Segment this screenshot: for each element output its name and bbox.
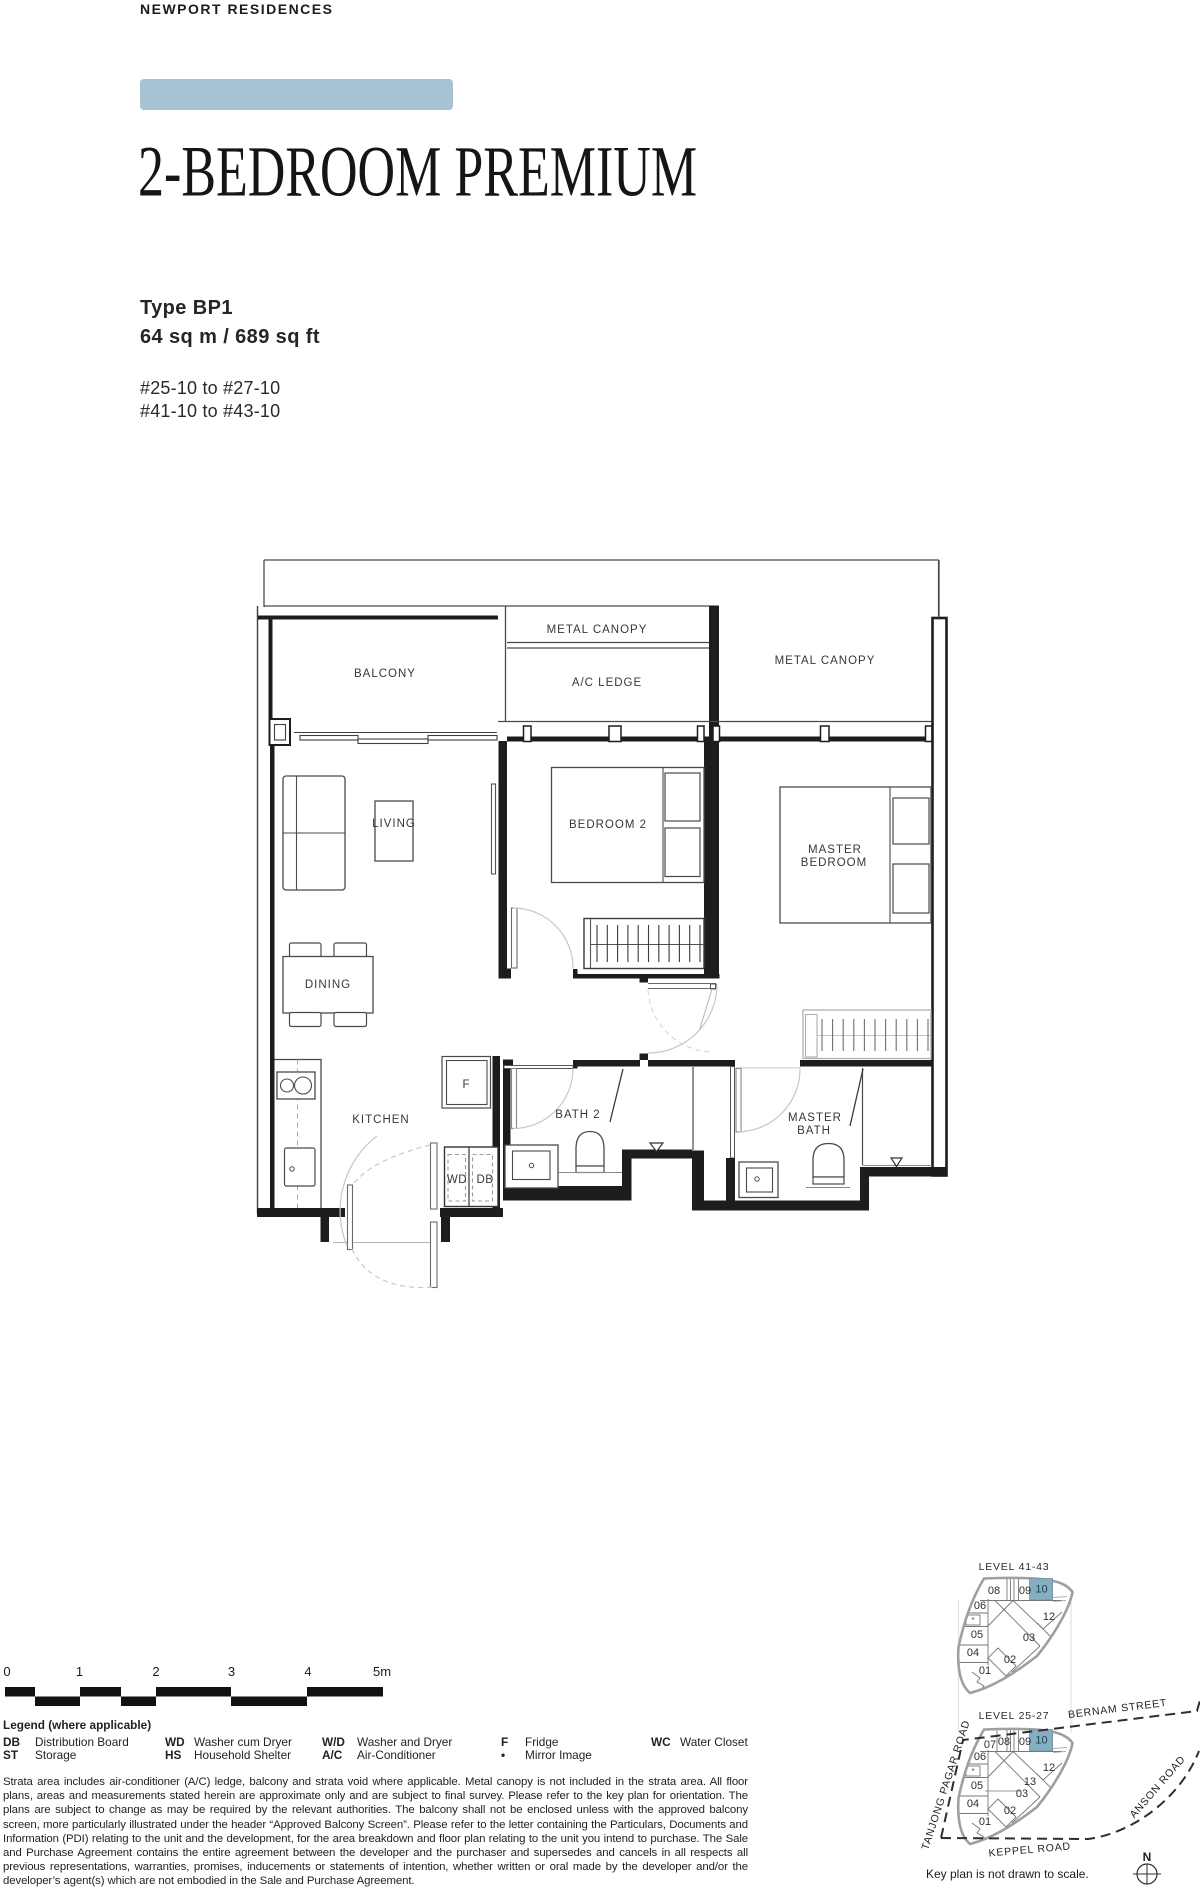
svg-text:WD: WD	[447, 1174, 467, 1186]
svg-text:03: 03	[1023, 1632, 1035, 1644]
svg-text:5m: 5m	[373, 1664, 391, 1679]
svg-text:12: 12	[1043, 1762, 1055, 1774]
svg-text:BEDROOM: BEDROOM	[801, 857, 867, 869]
svg-text:DINING: DINING	[305, 979, 351, 991]
svg-text:TANJONG PAGAR ROAD: TANJONG PAGAR ROAD	[919, 1719, 972, 1852]
svg-text:LEVEL 25-27: LEVEL 25-27	[979, 1710, 1050, 1722]
svg-text:07: 07	[984, 1739, 996, 1751]
svg-text:ANSON ROAD: ANSON ROAD	[1127, 1753, 1188, 1820]
svg-text:08: 08	[988, 1585, 1000, 1597]
svg-text:06: 06	[974, 1600, 986, 1612]
svg-text:*: *	[971, 1616, 974, 1625]
svg-text:04: 04	[967, 1647, 979, 1659]
svg-text:01: 01	[979, 1816, 991, 1828]
svg-text:02: 02	[1004, 1805, 1016, 1817]
svg-text:DB: DB	[477, 1174, 494, 1186]
svg-text:13: 13	[1024, 1776, 1036, 1788]
svg-text:*: *	[971, 1767, 974, 1776]
svg-text:LIVING: LIVING	[372, 818, 416, 830]
svg-text:0: 0	[3, 1664, 10, 1679]
svg-text:KEPPEL ROAD: KEPPEL ROAD	[988, 1840, 1071, 1859]
svg-text:N: N	[1143, 1850, 1152, 1864]
svg-text:METAL CANOPY: METAL CANOPY	[547, 624, 648, 636]
svg-text:3: 3	[228, 1664, 235, 1679]
svg-text:BEDROOM 2: BEDROOM 2	[569, 819, 647, 831]
svg-text:BATH: BATH	[797, 1125, 831, 1137]
svg-text:METAL CANOPY: METAL CANOPY	[775, 655, 876, 667]
svg-text:1: 1	[76, 1664, 83, 1679]
svg-text:04: 04	[967, 1798, 979, 1810]
svg-text:MASTER: MASTER	[808, 844, 862, 856]
svg-text:MASTER: MASTER	[788, 1112, 842, 1124]
svg-text:KITCHEN: KITCHEN	[352, 1114, 409, 1126]
svg-text:10: 10	[1035, 1735, 1047, 1747]
svg-text:F: F	[462, 1079, 470, 1091]
svg-text:02: 02	[1004, 1654, 1016, 1666]
svg-text:05: 05	[971, 1629, 983, 1641]
svg-text:BALCONY: BALCONY	[354, 668, 416, 680]
svg-text:08: 08	[998, 1736, 1010, 1748]
svg-text:05: 05	[971, 1780, 983, 1792]
svg-text:BATH 2: BATH 2	[555, 1109, 600, 1121]
svg-text:03: 03	[1016, 1788, 1028, 1800]
svg-text:LEVEL 41-43: LEVEL 41-43	[979, 1561, 1050, 1573]
svg-text:09: 09	[1019, 1585, 1031, 1597]
svg-text:01: 01	[979, 1665, 991, 1677]
svg-text:2: 2	[152, 1664, 159, 1679]
svg-text:A/C LEDGE: A/C LEDGE	[572, 677, 642, 689]
svg-text:12: 12	[1043, 1611, 1055, 1623]
svg-text:09: 09	[1019, 1736, 1031, 1748]
svg-text:4: 4	[304, 1664, 311, 1679]
svg-text:06: 06	[974, 1751, 986, 1763]
svg-text:10: 10	[1035, 1584, 1047, 1596]
